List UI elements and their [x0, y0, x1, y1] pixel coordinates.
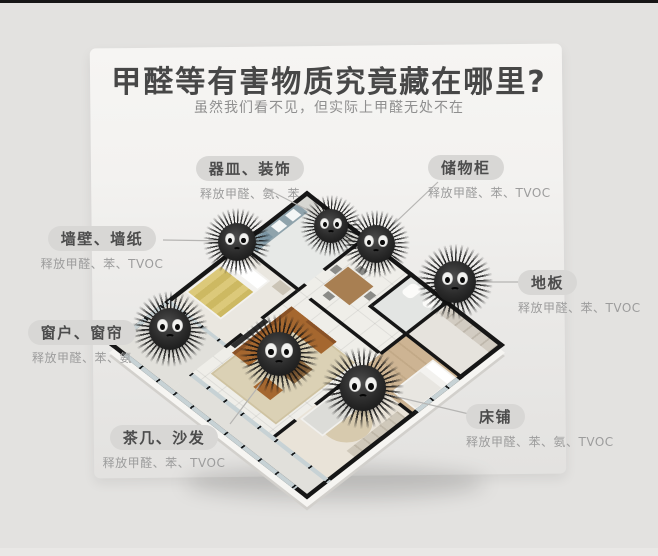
callout-vessels-decor: 器皿、装饰 释放甲醛、氨、苯: [188, 156, 312, 202]
callout-pill: 器皿、装饰: [196, 156, 305, 181]
monster-mouth: [358, 394, 368, 402]
callout-sub: 释放甲醛、苯、氨、TVOC: [466, 433, 614, 450]
infographic-stage: 甲醛等有害物质究竟藏在哪里? 虽然我们看不见，但实际上甲醛无处不在: [0, 0, 658, 556]
monster-eye: [365, 377, 377, 392]
monster-mouth: [327, 230, 334, 236]
callout-pill: 储物柜: [428, 155, 504, 180]
pollutant-monster-window: [149, 308, 191, 350]
monster-eye: [378, 235, 388, 248]
page-title: 甲醛等有害物质究竟藏在哪里?: [0, 57, 658, 101]
monster-eye: [442, 272, 453, 286]
monster-eye: [333, 218, 342, 229]
callout-windows-curtains: 窗户、窗帘 释放甲醛、苯、氨: [24, 320, 140, 366]
pollutant-monster-bed: [340, 365, 386, 411]
bottom-band: [0, 548, 658, 556]
callout-sub: 释放甲醛、苯、TVOC: [100, 454, 228, 471]
callout-floor: 地板 释放甲醛、苯、TVOC: [518, 270, 641, 316]
monster-eye: [157, 319, 168, 333]
monster-body: [218, 223, 256, 261]
monster-eye: [239, 233, 249, 246]
monster-eye: [225, 233, 235, 246]
callout-sub: 释放甲醛、苯、TVOC: [428, 184, 551, 201]
monster-body: [257, 332, 301, 376]
callout-sub: 释放甲醛、苯、TVOC: [40, 255, 164, 272]
callout-pill: 地板: [518, 270, 577, 295]
callout-pill: 墙壁、墙纸: [48, 226, 157, 251]
monster-mouth: [165, 334, 174, 341]
callout-sub: 释放甲醛、氨、苯: [188, 185, 312, 202]
callout-bed: 床铺 释放甲醛、苯、氨、TVOC: [466, 404, 614, 450]
callout-sub: 释放甲醛、苯、氨: [24, 349, 140, 366]
callout-storage-cabinet: 储物柜 释放甲醛、苯、TVOC: [428, 155, 551, 201]
pollutant-monster-floor: [434, 261, 476, 303]
monster-eye: [349, 377, 361, 392]
monster-mouth: [274, 360, 284, 367]
callout-sub: 释放甲醛、苯、TVOC: [518, 299, 641, 316]
top-black-bar: [0, 0, 658, 3]
callout-pill: 窗户、窗帘: [28, 320, 137, 345]
monster-mouth: [450, 287, 459, 294]
monster-body: [340, 365, 386, 411]
pollutant-monster-wall: [218, 223, 256, 261]
monster-eye: [281, 343, 292, 358]
monster-body: [357, 225, 395, 263]
callout-walls-wallpaper: 墙壁、墙纸 释放甲醛、苯、TVOC: [40, 226, 164, 272]
monster-eye: [364, 235, 374, 248]
callout-tea-table-sofa: 茶几、沙发 释放甲醛、苯、TVOC: [100, 425, 228, 471]
pollutant-monster-sofa: [257, 332, 301, 376]
callout-pill: 茶几、沙发: [110, 425, 219, 450]
pollutant-monster-storage: [357, 225, 395, 263]
monster-body: [149, 308, 191, 350]
monster-eye: [265, 343, 276, 358]
monster-body: [434, 261, 476, 303]
callout-pill: 床铺: [466, 404, 525, 429]
page-subtitle: 虽然我们看不见，但实际上甲醛无处不在: [0, 97, 658, 117]
monster-eye: [320, 218, 329, 229]
